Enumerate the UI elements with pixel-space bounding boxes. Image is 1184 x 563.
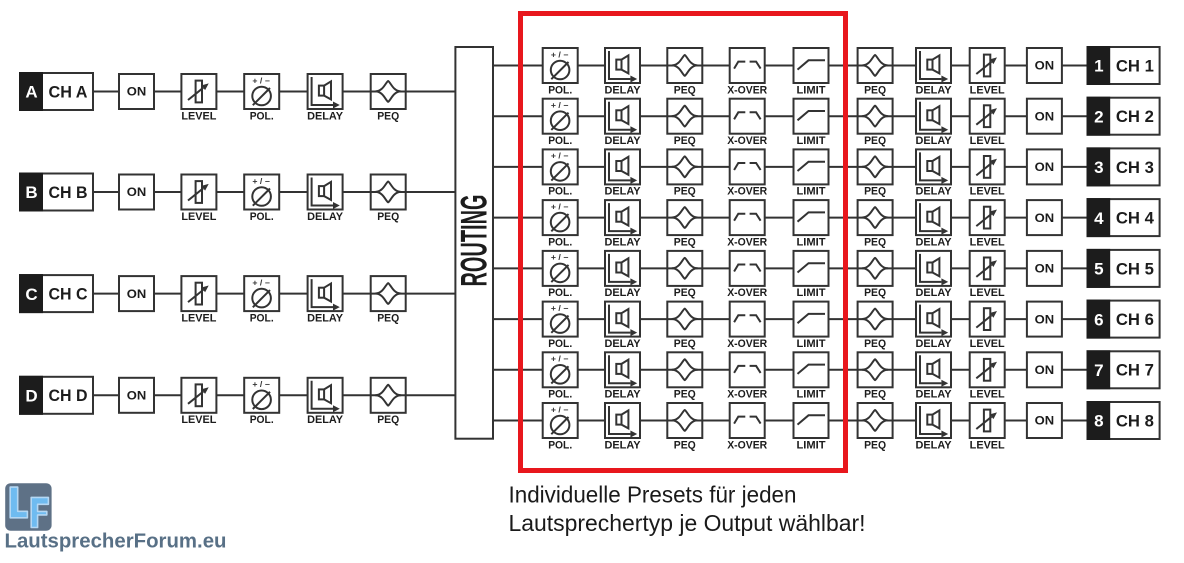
svg-text:PEQ: PEQ [674,84,696,96]
svg-text:4: 4 [1094,209,1104,228]
svg-text:PEQ: PEQ [674,135,696,147]
svg-text:POL.: POL. [548,135,572,147]
svg-text:POL.: POL. [548,84,572,96]
svg-text:PEQ: PEQ [864,338,886,350]
svg-text:POL.: POL. [548,236,572,248]
svg-text:CH 2: CH 2 [1116,108,1154,126]
svg-text:POL.: POL. [548,287,572,299]
svg-text:DELAY: DELAY [605,84,642,96]
svg-text:DELAY: DELAY [916,389,953,401]
svg-text:LEVEL: LEVEL [970,287,1005,299]
svg-text:DELAY: DELAY [916,84,953,96]
svg-text:LEVEL: LEVEL [970,135,1005,147]
svg-text:6: 6 [1094,310,1103,329]
svg-text:PEQ: PEQ [864,186,886,198]
svg-text:DELAY: DELAY [307,211,344,223]
svg-text:PEQ: PEQ [377,312,399,324]
svg-text:X-OVER: X-OVER [727,338,767,350]
svg-text:DELAY: DELAY [605,439,642,451]
svg-text:X-OVER: X-OVER [727,236,767,248]
svg-text:CH B: CH B [49,184,88,202]
svg-text:X-OVER: X-OVER [727,389,767,401]
svg-text:PEQ: PEQ [674,287,696,299]
svg-text:DELAY: DELAY [307,312,344,324]
svg-text:PEQ: PEQ [377,211,399,223]
svg-text:DELAY: DELAY [307,414,344,426]
svg-text:Individuelle Presets für jeden: Individuelle Presets für jeden [509,482,797,508]
svg-text:POL.: POL. [250,211,274,223]
svg-text:2: 2 [1094,107,1103,126]
svg-text:5: 5 [1094,260,1103,279]
svg-text:PEQ: PEQ [377,414,399,426]
svg-text:POL.: POL. [250,110,274,122]
svg-text:DELAY: DELAY [605,389,642,401]
svg-text:PEQ: PEQ [674,186,696,198]
svg-text:LEVEL: LEVEL [970,236,1005,248]
svg-text:X-OVER: X-OVER [727,135,767,147]
svg-text:LEVEL: LEVEL [970,389,1005,401]
svg-text:LIMIT: LIMIT [797,338,826,350]
svg-text:LEVEL: LEVEL [181,414,216,426]
svg-text:3: 3 [1094,158,1103,177]
svg-text:DELAY: DELAY [307,110,344,122]
svg-text:DELAY: DELAY [605,135,642,147]
svg-text:DELAY: DELAY [605,236,642,248]
svg-text:C: C [25,285,37,304]
svg-text:LIMIT: LIMIT [797,135,826,147]
svg-text:POL.: POL. [548,338,572,350]
svg-text:CH 4: CH 4 [1116,210,1155,228]
svg-text:PEQ: PEQ [674,338,696,350]
svg-text:DELAY: DELAY [916,236,953,248]
svg-text:Lautsprechertyp je Output wähl: Lautsprechertyp je Output wählbar! [509,510,866,536]
svg-text:LIMIT: LIMIT [797,186,826,198]
svg-text:X-OVER: X-OVER [727,84,767,96]
svg-text:PEQ: PEQ [377,110,399,122]
svg-text:LEVEL: LEVEL [181,211,216,223]
svg-text:PEQ: PEQ [674,236,696,248]
svg-text:DELAY: DELAY [605,338,642,350]
svg-text:8: 8 [1094,412,1103,431]
svg-text:CH 7: CH 7 [1116,362,1154,380]
svg-text:POL.: POL. [548,389,572,401]
svg-text:PEQ: PEQ [674,439,696,451]
svg-text:POL.: POL. [250,312,274,324]
svg-text:X-OVER: X-OVER [727,186,767,198]
svg-text:1: 1 [1094,57,1103,76]
svg-text:DELAY: DELAY [916,135,953,147]
svg-text:CH 1: CH 1 [1116,57,1154,75]
svg-text:LIMIT: LIMIT [797,84,826,96]
svg-text:PEQ: PEQ [864,135,886,147]
svg-text:DELAY: DELAY [916,338,953,350]
svg-text:D: D [25,387,37,406]
svg-text:DELAY: DELAY [916,439,953,451]
svg-text:LEVEL: LEVEL [181,312,216,324]
svg-text:X-OVER: X-OVER [727,439,767,451]
svg-text:CH A: CH A [49,83,88,101]
svg-text:PEQ: PEQ [674,389,696,401]
svg-text:LEVEL: LEVEL [970,439,1005,451]
svg-text:PEQ: PEQ [864,236,886,248]
svg-text:CH 5: CH 5 [1116,260,1154,278]
svg-text:LEVEL: LEVEL [181,110,216,122]
svg-text:PEQ: PEQ [864,287,886,299]
svg-text:X-OVER: X-OVER [727,287,767,299]
svg-text:POL.: POL. [250,414,274,426]
svg-text:ROUTING: ROUTING [454,195,495,287]
svg-text:LEVEL: LEVEL [970,186,1005,198]
svg-text:CH 3: CH 3 [1116,159,1154,177]
svg-text:CH C: CH C [49,286,88,304]
svg-text:LIMIT: LIMIT [797,439,826,451]
svg-text:DELAY: DELAY [605,186,642,198]
svg-text:LEVEL: LEVEL [970,338,1005,350]
svg-text:LIMIT: LIMIT [797,236,826,248]
svg-text:POL.: POL. [548,186,572,198]
svg-text:LEVEL: LEVEL [970,84,1005,96]
svg-text:LIMIT: LIMIT [797,287,826,299]
svg-text:DELAY: DELAY [916,186,953,198]
svg-text:LIMIT: LIMIT [797,389,826,401]
svg-text:POL.: POL. [548,439,572,451]
svg-text:CH 8: CH 8 [1116,412,1154,430]
svg-text:DELAY: DELAY [916,287,953,299]
svg-text:CH D: CH D [49,387,88,405]
svg-text:DELAY: DELAY [605,287,642,299]
svg-text:PEQ: PEQ [864,389,886,401]
svg-text:B: B [25,183,37,202]
svg-text:A: A [25,83,37,102]
svg-text:PEQ: PEQ [864,84,886,96]
svg-text:PEQ: PEQ [864,439,886,451]
svg-text:CH 6: CH 6 [1116,311,1154,329]
svg-text:LautsprecherForum.eu: LautsprecherForum.eu [5,530,227,553]
svg-text:7: 7 [1094,361,1103,380]
